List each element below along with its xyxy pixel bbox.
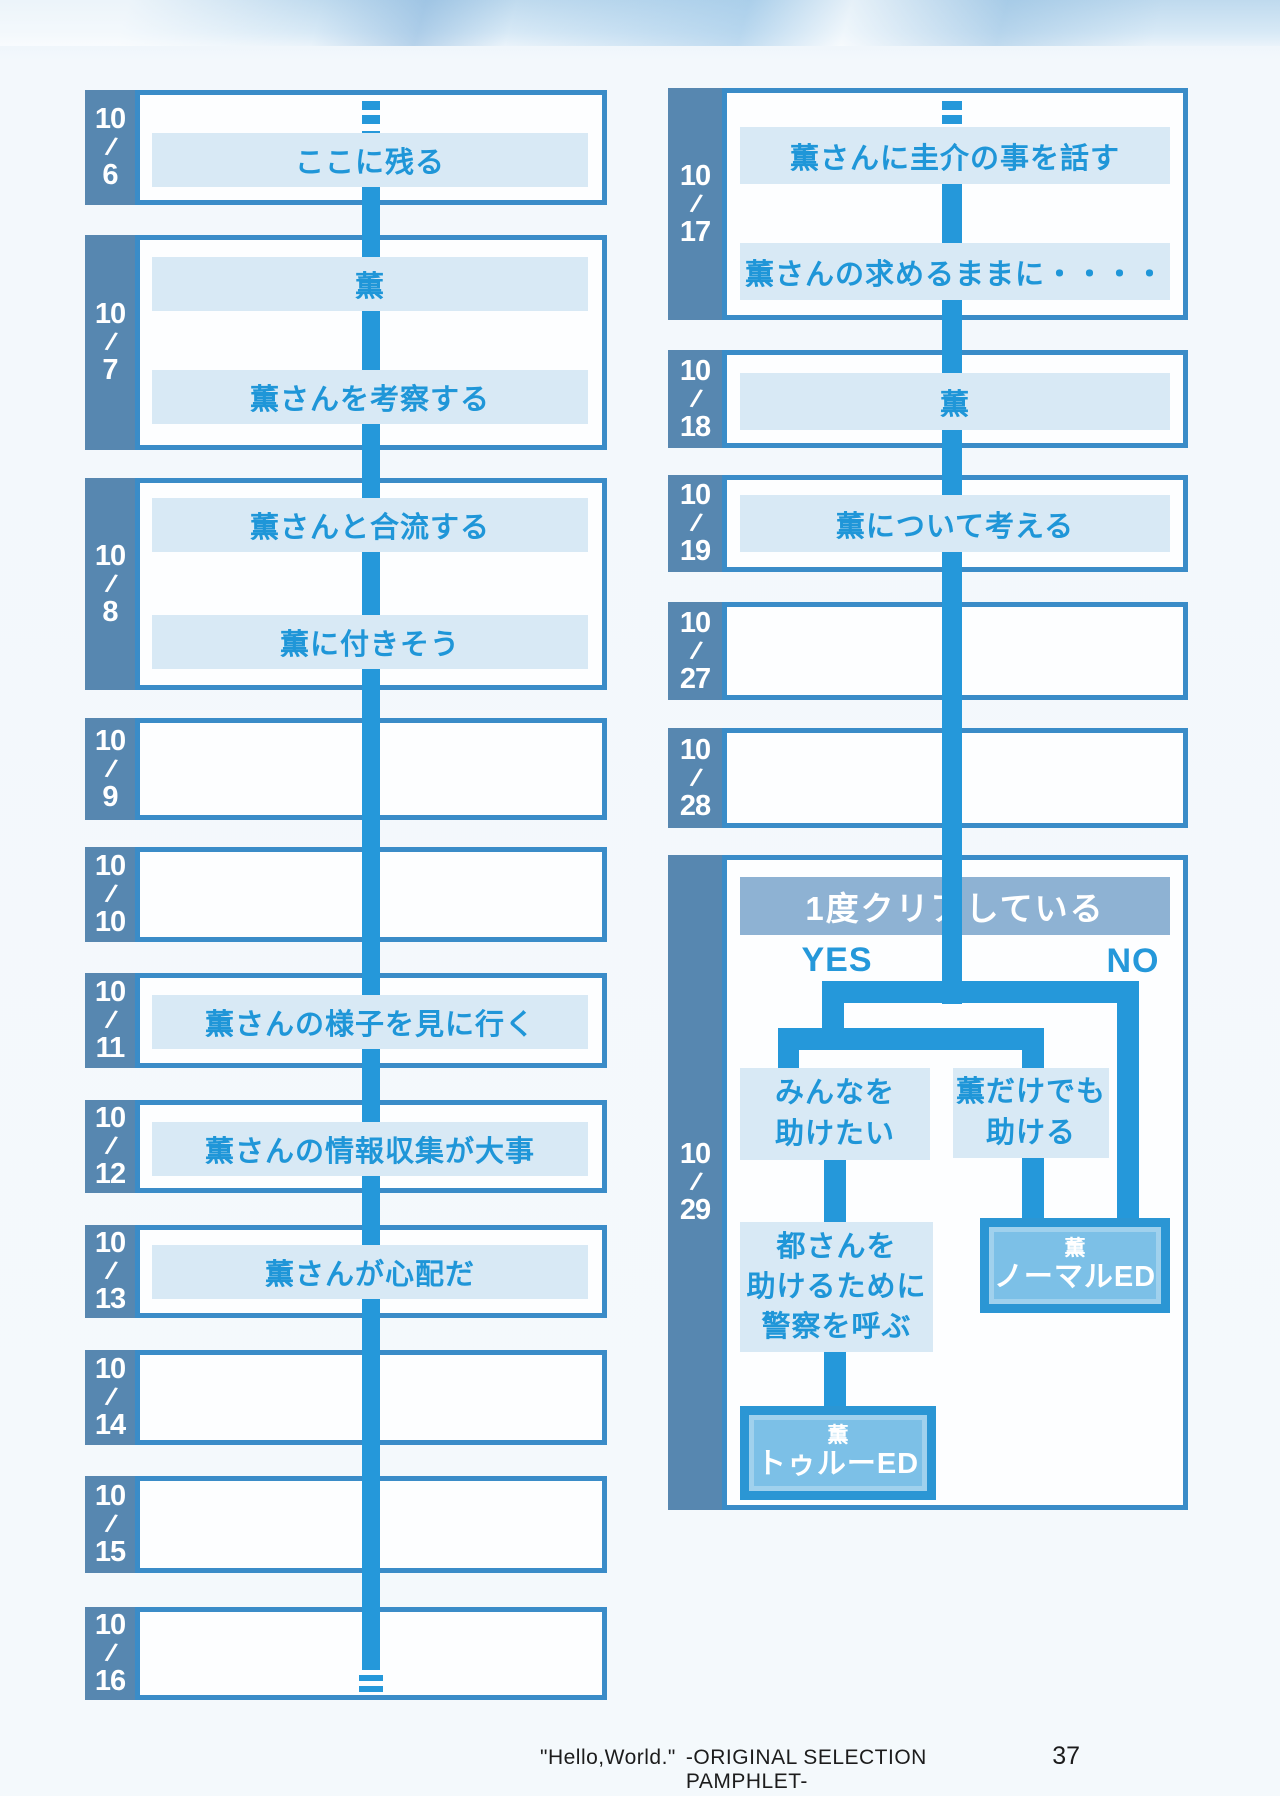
choice-line: 薫だけでも bbox=[956, 1072, 1106, 1113]
date-month: 10 bbox=[680, 736, 710, 765]
date-month: 10 bbox=[95, 300, 125, 329]
day-box-10-18: 10 / 18 薫 bbox=[668, 350, 1188, 448]
choice-line: 助けるために bbox=[746, 1267, 926, 1307]
no-path-line bbox=[1117, 1003, 1139, 1222]
date-tab: 10 / 15 bbox=[85, 1476, 135, 1573]
choice-band: 薫さんの様子を見に行く bbox=[152, 995, 588, 1049]
date-day: 12 bbox=[95, 1160, 125, 1189]
choice-line: 助けたい bbox=[775, 1114, 895, 1155]
choice-label: 薫さんに圭介の事を話す bbox=[790, 135, 1120, 177]
date-month: 10 bbox=[95, 1611, 125, 1640]
flow-break-dash bbox=[362, 101, 380, 110]
choice-label: 薫 bbox=[940, 381, 970, 423]
choice-label: 薫さんと合流する bbox=[250, 504, 490, 546]
date-slash: / bbox=[104, 882, 115, 908]
choice-band: 薫さんと合流する bbox=[152, 498, 588, 552]
date-slash: / bbox=[104, 756, 115, 782]
day-box-10-7: 10 / 7 薫 薫さんを考察する bbox=[85, 235, 607, 450]
date-tab: 10 / 27 bbox=[668, 602, 722, 700]
date-month: 10 bbox=[680, 609, 710, 638]
choice-save-everyone: みんなを 助けたい bbox=[740, 1068, 930, 1160]
choice-label: 薫さんの情報収集が大事 bbox=[205, 1128, 535, 1170]
choice-label: 薫 bbox=[355, 263, 385, 305]
choice-label: 薫さんの求めるままに・・・・ bbox=[745, 251, 1165, 293]
connector-right-ending bbox=[1022, 1156, 1044, 1220]
day-box-10-12: 10 / 12 薫さんの情報収集が大事 bbox=[85, 1100, 607, 1193]
date-tab: 10 / 10 bbox=[85, 847, 135, 942]
ending-character: 薫 bbox=[1065, 1237, 1086, 1261]
choice-save-kaoru-only: 薫だけでも 助ける bbox=[953, 1068, 1109, 1158]
date-day: 17 bbox=[680, 218, 710, 247]
date-month: 10 bbox=[95, 105, 125, 134]
date-tab: 10 / 19 bbox=[668, 475, 722, 572]
connector-true-ending bbox=[824, 1350, 846, 1408]
choice-band: 薫さんに圭介の事を話す bbox=[740, 127, 1170, 184]
date-tab: 10 / 16 bbox=[85, 1607, 135, 1700]
day-box-10-29: 10 / 29 1度クリアしている YES NO みんなを 助けたい 薫だけでも… bbox=[668, 855, 1188, 1510]
date-day: 18 bbox=[680, 413, 710, 442]
choice-label: ここに残る bbox=[295, 139, 445, 181]
page-number: 37 bbox=[1052, 1742, 1080, 1771]
date-tab: 10 / 18 bbox=[668, 350, 722, 448]
date-day: 7 bbox=[102, 356, 117, 385]
flow-break-dash bbox=[942, 115, 962, 124]
yes-label: YES bbox=[792, 941, 882, 980]
date-slash: / bbox=[104, 1512, 115, 1538]
date-slash: / bbox=[104, 1385, 115, 1411]
date-slash: / bbox=[689, 1170, 700, 1196]
date-slash: / bbox=[104, 1641, 115, 1667]
footer-title: "Hello,World." bbox=[540, 1746, 676, 1770]
date-month: 10 bbox=[95, 727, 125, 756]
branch-bar-top bbox=[822, 981, 1139, 1003]
date-day: 15 bbox=[95, 1538, 125, 1567]
flow-break-dash bbox=[942, 101, 962, 110]
date-month: 10 bbox=[95, 1229, 125, 1258]
ice-texture-banner bbox=[0, 0, 1280, 46]
choice-band: ここに残る bbox=[152, 133, 588, 187]
day-box-10-15: 10 / 15 bbox=[85, 1476, 607, 1573]
branch-bar-bottom bbox=[778, 1028, 1044, 1050]
ending-label: ノーマルED bbox=[994, 1261, 1156, 1294]
date-slash: / bbox=[689, 765, 700, 791]
date-month: 10 bbox=[95, 852, 125, 881]
date-month: 10 bbox=[680, 162, 710, 191]
date-month: 10 bbox=[680, 481, 710, 510]
date-day: 19 bbox=[680, 537, 710, 566]
date-day: 14 bbox=[95, 1411, 125, 1440]
choice-label: 薫さんを考察する bbox=[250, 376, 490, 418]
day-box-10-14: 10 / 14 bbox=[85, 1350, 607, 1445]
date-tab: 10 / 7 bbox=[85, 235, 135, 450]
flow-break-dash bbox=[362, 115, 380, 124]
ending-label: トゥルーED bbox=[757, 1448, 919, 1481]
date-slash: / bbox=[104, 571, 115, 597]
date-month: 10 bbox=[95, 978, 125, 1007]
date-day: 16 bbox=[95, 1667, 125, 1696]
date-tab: 10 / 12 bbox=[85, 1100, 135, 1193]
date-month: 10 bbox=[680, 357, 710, 386]
date-tab: 10 / 9 bbox=[85, 718, 135, 820]
choice-label: 薫さんの様子を見に行く bbox=[205, 1001, 535, 1043]
flow-line-left bbox=[362, 131, 380, 1670]
date-month: 10 bbox=[95, 1355, 125, 1384]
choice-line: 助ける bbox=[986, 1113, 1076, 1154]
day-box-10-16: 10 / 16 bbox=[85, 1607, 607, 1700]
ending-true-box: 薫 トゥルーED bbox=[740, 1406, 936, 1500]
day-box-10-8: 10 / 8 薫さんと合流する 薫に付きそう bbox=[85, 478, 607, 690]
choice-band: 薫 bbox=[152, 257, 588, 311]
ending-character: 薫 bbox=[828, 1424, 849, 1448]
choice-line: みんなを bbox=[775, 1073, 895, 1114]
page-footer: "Hello,World." -ORIGINAL SELECTION PAMPH… bbox=[540, 1742, 1080, 1794]
step-call-police: 都さんを 助けるために 警察を呼ぶ bbox=[740, 1222, 933, 1352]
date-slash: / bbox=[104, 135, 115, 161]
choice-band: 薫さんが心配だ bbox=[152, 1245, 588, 1299]
choice-band: 薫さんの求めるままに・・・・ bbox=[740, 243, 1170, 300]
branch-bar-top-drop bbox=[822, 1003, 844, 1030]
date-tab: 10 / 14 bbox=[85, 1350, 135, 1445]
date-day: 9 bbox=[102, 783, 117, 812]
date-slash: / bbox=[689, 386, 700, 412]
date-day: 27 bbox=[680, 665, 710, 694]
date-day: 8 bbox=[102, 598, 117, 627]
date-tab: 10 / 28 bbox=[668, 728, 722, 828]
date-slash: / bbox=[689, 191, 700, 217]
date-month: 10 bbox=[95, 1482, 125, 1511]
day-box-10-27: 10 / 27 bbox=[668, 602, 1188, 700]
choice-band: 薫さんを考察する bbox=[152, 370, 588, 424]
date-slash: / bbox=[104, 1134, 115, 1160]
date-day: 29 bbox=[680, 1196, 710, 1225]
date-day: 13 bbox=[95, 1285, 125, 1314]
date-day: 10 bbox=[95, 908, 125, 937]
choice-band: 薫さんの情報収集が大事 bbox=[152, 1122, 588, 1176]
date-tab: 10 / 13 bbox=[85, 1225, 135, 1318]
choice-line: 警察を呼ぶ bbox=[761, 1307, 911, 1347]
day-box-10-11: 10 / 11 薫さんの様子を見に行く bbox=[85, 973, 607, 1068]
date-tab: 10 / 29 bbox=[668, 855, 722, 1510]
choice-label: 薫に付きそう bbox=[280, 621, 460, 663]
date-month: 10 bbox=[95, 542, 125, 571]
pamphlet-page: 10 / 6 ここに残る 10 / 7 薫 薫さんを考察する 10 / 8 薫さ… bbox=[0, 0, 1280, 1796]
date-day: 28 bbox=[680, 792, 710, 821]
choice-label: 薫について考える bbox=[836, 503, 1074, 545]
choice-label: 薫さんが心配だ bbox=[265, 1251, 475, 1293]
date-day: 6 bbox=[102, 161, 117, 190]
choice-band: 薫について考える bbox=[740, 495, 1170, 552]
footer-subtitle: -ORIGINAL SELECTION PAMPHLET- bbox=[686, 1746, 1030, 1794]
date-tab: 10 / 6 bbox=[85, 90, 135, 205]
day-box-10-13: 10 / 13 薫さんが心配だ bbox=[85, 1225, 607, 1318]
day-box-10-10: 10 / 10 bbox=[85, 847, 607, 942]
choice-band: 薫に付きそう bbox=[152, 615, 588, 669]
date-day: 11 bbox=[96, 1034, 125, 1063]
date-slash: / bbox=[104, 330, 115, 356]
date-slash: / bbox=[689, 638, 700, 664]
date-tab: 10 / 17 bbox=[668, 88, 722, 320]
day-box-10-28: 10 / 28 bbox=[668, 728, 1188, 828]
choice-band: 薫 bbox=[740, 373, 1170, 430]
date-month: 10 bbox=[680, 1140, 710, 1169]
choice-line: 都さんを bbox=[776, 1227, 896, 1267]
date-month: 10 bbox=[95, 1104, 125, 1133]
date-tab: 10 / 11 bbox=[85, 973, 135, 1068]
flow-break-dash bbox=[359, 1686, 383, 1692]
day-box-10-17: 10 / 17 薫さんに圭介の事を話す 薫さんの求めるままに・・・・ bbox=[668, 88, 1188, 320]
connector-left-step bbox=[824, 1158, 846, 1224]
flow-break-dash bbox=[359, 1675, 383, 1681]
day-box-10-19: 10 / 19 薫について考える bbox=[668, 475, 1188, 572]
date-tab: 10 / 8 bbox=[85, 478, 135, 690]
no-label: NO bbox=[1088, 942, 1178, 981]
day-box-10-9: 10 / 9 bbox=[85, 718, 607, 820]
date-slash: / bbox=[104, 1008, 115, 1034]
ending-normal-box: 薫 ノーマルED bbox=[980, 1218, 1170, 1313]
date-slash: / bbox=[689, 511, 700, 537]
date-slash: / bbox=[104, 1259, 115, 1285]
day-box-10-6: 10 / 6 ここに残る bbox=[85, 90, 607, 205]
